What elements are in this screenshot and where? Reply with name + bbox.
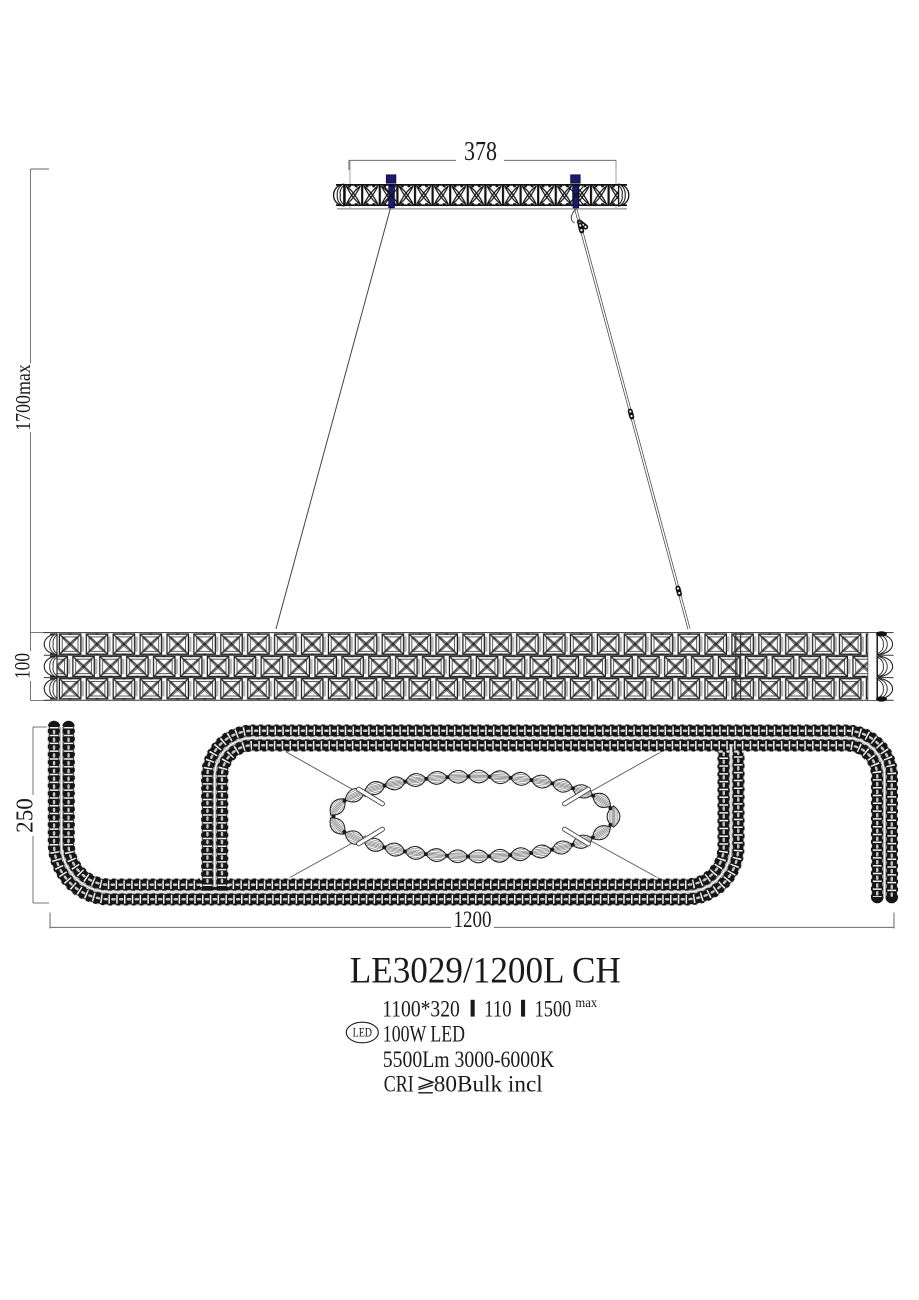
svg-text:100W LED: 100W LED (383, 1022, 465, 1047)
svg-text:LED: LED (353, 1026, 372, 1040)
svg-text:1700max: 1700max (11, 364, 35, 431)
svg-text:80Bulk incl: 80Bulk incl (434, 1071, 543, 1096)
svg-text:110: 110 (484, 996, 511, 1021)
svg-text:100: 100 (10, 653, 35, 679)
svg-text:250: 250 (11, 798, 38, 833)
svg-text:1500: 1500 (535, 996, 572, 1021)
svg-text:CRI: CRI (384, 1071, 414, 1096)
svg-text:max: max (575, 995, 597, 1010)
svg-text:378: 378 (464, 136, 497, 166)
svg-text:1200: 1200 (454, 907, 492, 932)
svg-text:LE3029/1200L CH: LE3029/1200L CH (350, 951, 621, 992)
svg-text:5500Lm 3000-6000K: 5500Lm 3000-6000K (383, 1047, 555, 1072)
svg-text:1100*320: 1100*320 (382, 996, 460, 1021)
